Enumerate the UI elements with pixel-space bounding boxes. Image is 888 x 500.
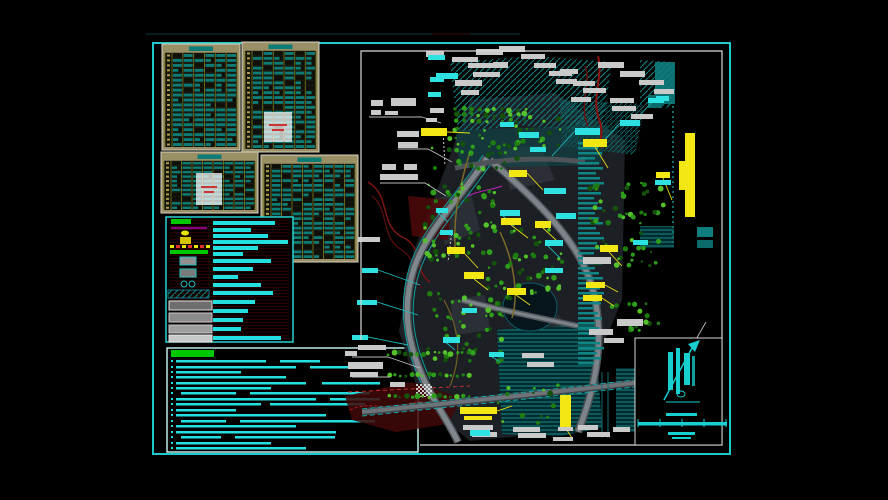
annotation-label [631,114,653,119]
annotation-label [362,268,378,273]
annotation-label [613,427,630,432]
table-watermark [196,173,222,205]
cad-viewport[interactable] [0,0,888,500]
annotation-label [583,295,602,301]
annotation-label [382,164,396,170]
annotation-label [436,208,448,213]
annotation-label [656,172,670,178]
annotation-label [426,118,437,122]
annotation-label [509,170,527,177]
annotation-label [571,97,591,102]
annotation-label [428,92,441,97]
schedule-table-2 [242,42,319,152]
annotation-label [476,49,503,55]
annotation-label [573,81,595,86]
annotation-label [639,80,664,85]
annotation-label [610,98,634,103]
annotation-label [371,110,381,115]
annotation-label [470,430,490,436]
annotation-label [612,106,636,111]
annotation-label [452,57,478,62]
annotation-label [430,77,444,82]
annotation-label [521,54,545,59]
annotation-label [507,288,526,295]
annotation-label [380,174,418,180]
annotation-label [583,88,606,93]
annotation-label [560,69,578,74]
annotation-label [589,329,613,335]
annotation-label [348,362,383,369]
annotation-label [404,164,417,170]
annotation-label [345,351,357,356]
annotation-label [544,188,566,194]
annotation-label [397,131,419,137]
annotation-label [352,335,368,340]
annotation-label [519,132,539,138]
annotation-label [430,108,444,113]
annotation-label [633,240,648,245]
annotation-label [462,308,477,313]
annotation-label [513,427,540,432]
annotation-label [617,319,643,326]
annotation-label [518,433,546,438]
annotation-label [350,372,378,377]
annotation-label [586,282,605,288]
table-watermark [264,112,292,142]
annotation-label [560,395,571,427]
cad-canvas[interactable] [0,0,888,500]
annotation-label [489,352,504,357]
annotation-label [583,257,611,264]
annotation-label [500,210,520,216]
annotation-label [578,425,598,430]
annotation-label [473,72,500,77]
annotation-label [464,272,484,279]
annotation-label [522,353,544,358]
annotation-label [535,221,551,228]
annotation-label [620,120,640,126]
annotation-label [598,62,624,68]
annotation-label [421,128,447,136]
annotation-label [575,128,600,135]
annotation-label [358,345,386,350]
annotation-label [656,96,669,101]
annotation-label [371,100,383,106]
annotation-label [493,62,508,68]
annotation-label [463,425,493,430]
annotation-label [527,362,554,367]
annotation-label [464,416,492,420]
legend-panel [166,217,293,342]
annotation-label [455,80,482,86]
annotation-label [447,247,465,254]
annotation-label [583,139,607,147]
schedule-table-3 [161,152,258,213]
annotation-label [587,432,610,437]
annotation-label [556,213,576,219]
north-arrow-scale-block [635,338,727,445]
annotation-label [501,218,521,225]
annotation-label [398,142,418,148]
annotation-label [440,230,453,235]
annotation-label [385,111,398,115]
annotation-label [654,89,674,94]
annotation-label [391,98,416,106]
annotation-label [600,245,618,252]
annotation-label [428,55,445,60]
annotation-label [530,147,546,152]
annotation-label [443,337,460,343]
annotation-label [500,122,514,127]
annotation-label [558,427,573,431]
annotation-label [655,180,671,185]
annotation-label [604,338,624,343]
annotation-label [620,71,645,77]
annotation-label [460,407,497,414]
annotation-label [545,240,563,246]
annotation-label [390,382,405,387]
annotation-label [553,437,573,441]
annotation-label [545,268,563,273]
annotation-label [461,90,479,95]
annotation-label [534,63,556,68]
annotation-label [357,300,377,305]
schedule-table-1 [162,44,240,150]
